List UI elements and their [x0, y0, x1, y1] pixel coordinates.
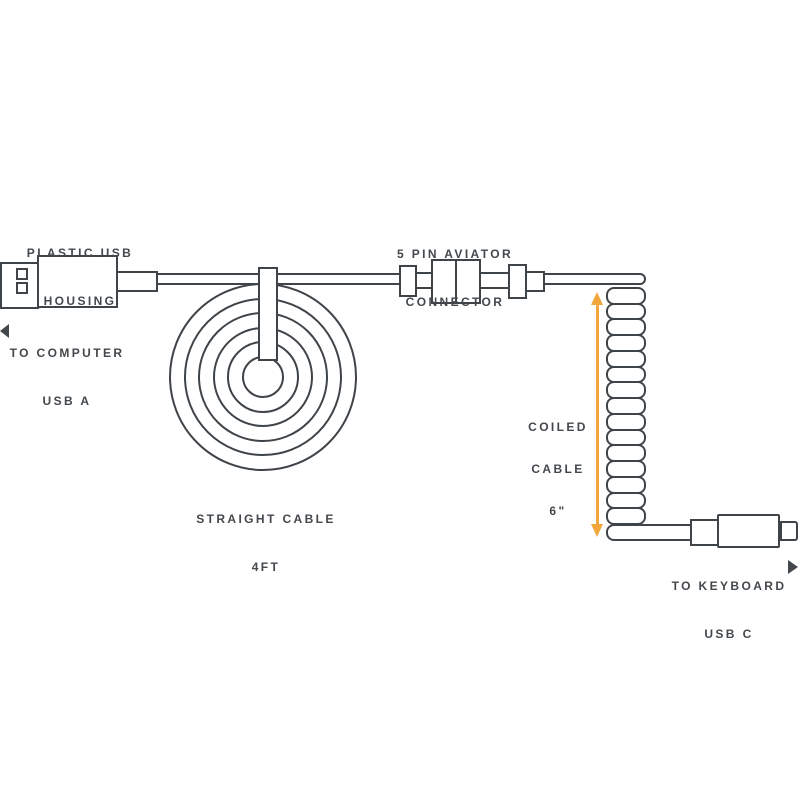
plastic-usb-housing-label-line2: HOUSING [0, 293, 180, 309]
to-keyboard-label-line1: TO KEYBOARD [629, 578, 800, 594]
aviator-connector-label: 5 PIN AVIATOR CONNECTOR [355, 214, 555, 342]
straight-cable-segment-right [543, 273, 646, 285]
diagram-canvas: PLASTIC USB HOUSING TO COMPUTER USB A 5 … [0, 0, 800, 800]
straight-cable-label-line2: 4FT [166, 559, 366, 575]
to-keyboard-label: TO KEYBOARD USB C [629, 546, 800, 674]
cable-strap [258, 267, 278, 361]
to-computer-label-line2: USB A [0, 393, 167, 409]
aviator-connector-label-line1: 5 PIN AVIATOR [355, 246, 555, 262]
to-computer-arrow-icon [0, 324, 9, 338]
coiled-cable-label-line3: 6" [478, 504, 638, 518]
usb-c-plug [780, 521, 798, 541]
straight-cable-label: STRAIGHT CABLE 4FT [166, 479, 366, 607]
straight-cable-label-line1: STRAIGHT CABLE [166, 511, 366, 527]
to-computer-label-line1: TO COMPUTER [0, 345, 167, 361]
plastic-usb-housing-label-line1: PLASTIC USB [0, 245, 180, 261]
coiled-cable-label-line2: CABLE [478, 462, 638, 476]
coiled-cable-label: COILED CABLE 6" [478, 392, 638, 546]
coil-circle-6 [242, 356, 284, 398]
usb-c-housing [717, 514, 780, 548]
to-keyboard-label-line2: USB C [629, 626, 800, 642]
usb-c-strain-relief [690, 519, 719, 546]
coiled-cable-label-line1: COILED [478, 420, 638, 434]
to-keyboard-arrow-icon [788, 560, 798, 574]
aviator-connector-label-line2: CONNECTOR [355, 294, 555, 310]
to-computer-label: TO COMPUTER USB A [0, 313, 167, 441]
